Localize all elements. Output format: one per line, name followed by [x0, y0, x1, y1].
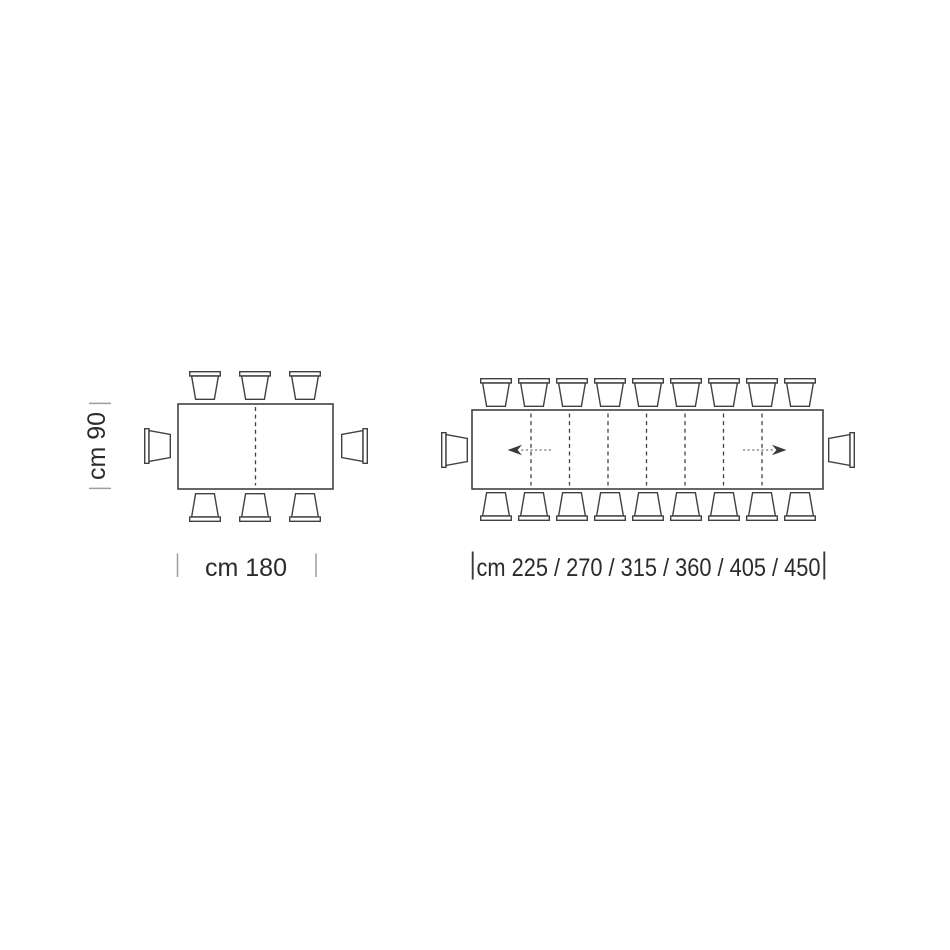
chair-icon — [481, 379, 512, 407]
chair-icon — [557, 493, 588, 521]
chairs-row-top — [190, 372, 321, 400]
chair-icon — [671, 493, 702, 521]
chair-icon — [240, 494, 271, 522]
chair-icon — [709, 379, 740, 407]
chair-icon — [481, 493, 512, 521]
depth-dimension-label: cm 90 — [83, 412, 111, 480]
width-dimension-extendable: cm 225 / 270 / 315 / 360 / 405 / 450 — [473, 552, 825, 583]
table-plans-drawing: cm 90 cm 180 — [0, 0, 950, 950]
depth-dimension: cm 90 — [83, 403, 111, 488]
chair-icon — [747, 379, 778, 407]
width-dimension-fixed: cm 180 — [178, 554, 317, 583]
extendable-table-diagram: cm 225 / 270 / 315 / 360 / 405 / 450 — [442, 379, 855, 582]
chair-icon — [442, 433, 468, 468]
chair-icon — [145, 429, 171, 464]
chairs-row-bottom — [481, 493, 816, 521]
chair-icon — [519, 493, 550, 521]
chair-icon — [519, 379, 550, 407]
chairs-row-top — [481, 379, 816, 407]
chair-icon — [190, 372, 221, 400]
chairs-row-bottom — [190, 494, 321, 522]
chair-icon — [633, 379, 664, 407]
width-dimension-label: cm 225 / 270 / 315 / 360 / 405 / 450 — [477, 554, 821, 582]
chair-icon — [190, 494, 221, 522]
fixed-table-diagram: cm 90 cm 180 — [83, 372, 367, 582]
chair-icon — [671, 379, 702, 407]
chair-icon — [633, 493, 664, 521]
table-top-extendable — [472, 410, 823, 489]
chair-icon — [829, 433, 855, 468]
chair-icon — [785, 379, 816, 407]
chair-icon — [595, 493, 626, 521]
chair-icon — [290, 372, 321, 400]
chair-icon — [342, 429, 368, 464]
chair-icon — [709, 493, 740, 521]
chair-icon — [785, 493, 816, 521]
chair-icon — [240, 372, 271, 400]
chair-icon — [747, 493, 778, 521]
table-plan-diagram-page: cm 90 cm 180 — [0, 0, 950, 950]
width-dimension-label: cm 180 — [205, 554, 287, 582]
chair-icon — [595, 379, 626, 407]
chair-icon — [290, 494, 321, 522]
chair-icon — [557, 379, 588, 407]
